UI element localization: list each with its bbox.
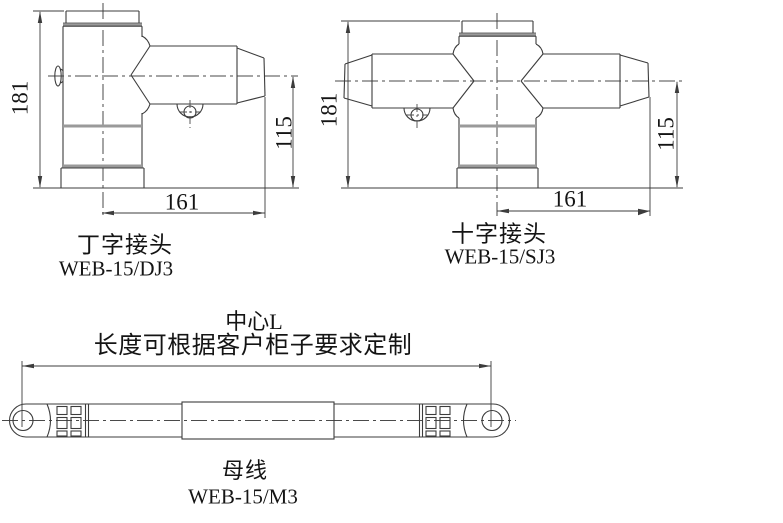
cross-joint-title: 十字接头 [451, 223, 547, 246]
busbar-length-note: 长度可根据客户柜子要求定制 [94, 334, 413, 358]
t-joint-arm-height-dim: 115 [273, 116, 296, 150]
cross-joint-figure [335, 13, 683, 216]
t-joint-title: 丁字接头 [77, 234, 173, 257]
t-joint-height-dim: 181 [9, 81, 32, 116]
busbar-model: WEB-15/M3 [188, 487, 298, 508]
cross-joint-arm-height-dim: 115 [655, 117, 678, 151]
busbar-figure [2, 361, 516, 439]
t-joint-width-dim: 161 [165, 191, 200, 214]
cross-joint-model: WEB-15/SJ3 [445, 247, 556, 268]
busbar-center-dim-label: 中心L [225, 311, 282, 333]
busbar-title: 母线 [222, 460, 268, 482]
t-joint-figure [33, 3, 299, 218]
t-joint-model: WEB-15/DJ3 [59, 259, 173, 280]
drawing-sheet: 181 115 161 丁字接头 WEB-15/DJ3 181 115 161 … [0, 0, 783, 523]
cross-joint-height-dim: 181 [318, 93, 341, 128]
cross-joint-width-dim: 161 [553, 188, 588, 211]
